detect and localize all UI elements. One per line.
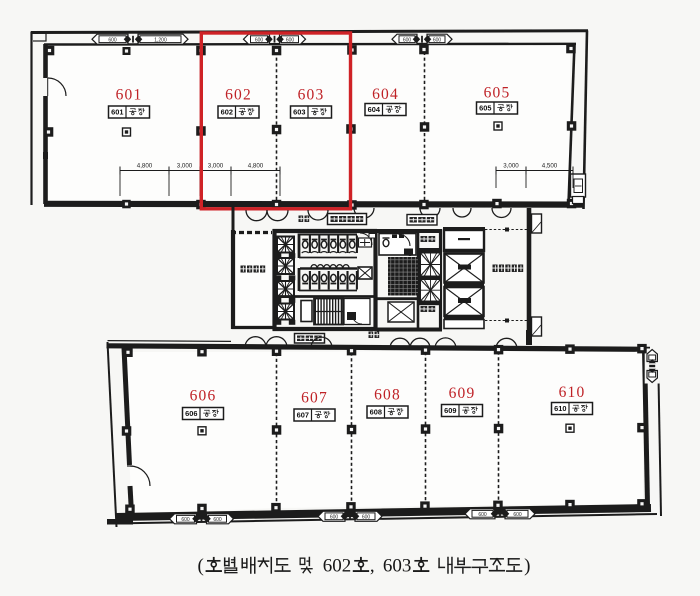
svg-text:608: 608 — [374, 387, 401, 404]
svg-text:3,000: 3,000 — [503, 163, 519, 170]
svg-text:600: 600 — [478, 512, 487, 518]
svg-text:605: 605 — [479, 104, 491, 113]
svg-text:(: ( — [198, 556, 204, 577]
svg-text:603: 603 — [293, 108, 305, 117]
svg-text:602: 602 — [221, 108, 233, 117]
svg-text:3,000: 3,000 — [208, 163, 224, 170]
svg-text:610: 610 — [559, 384, 586, 401]
svg-text:600: 600 — [403, 37, 412, 43]
svg-text:600: 600 — [433, 37, 442, 43]
svg-text:609: 609 — [444, 406, 456, 415]
svg-text:608: 608 — [370, 408, 382, 417]
svg-text:4,800: 4,800 — [137, 163, 153, 170]
svg-text:600: 600 — [362, 514, 371, 520]
svg-text:604: 604 — [372, 86, 399, 103]
svg-text:607: 607 — [297, 411, 309, 420]
svg-text:600: 600 — [330, 514, 339, 520]
svg-text:606: 606 — [185, 409, 197, 418]
svg-text:600: 600 — [108, 37, 117, 43]
svg-text:): ) — [524, 556, 530, 577]
svg-text:600: 600 — [255, 37, 264, 43]
svg-text:3,000: 3,000 — [177, 163, 193, 170]
svg-text:601: 601 — [111, 108, 123, 117]
svg-text:600: 600 — [286, 37, 295, 43]
svg-text:4,800: 4,800 — [248, 163, 264, 170]
svg-text:603: 603 — [298, 87, 325, 104]
svg-text:1,200: 1,200 — [154, 37, 167, 43]
svg-text:600: 600 — [513, 512, 522, 518]
svg-text:607: 607 — [301, 390, 328, 407]
svg-text:4,500: 4,500 — [542, 163, 558, 170]
svg-text:,: , — [370, 556, 375, 577]
svg-text:609: 609 — [449, 385, 476, 402]
svg-text:600: 600 — [181, 517, 190, 523]
svg-text:610: 610 — [554, 404, 566, 413]
svg-text:606: 606 — [190, 388, 217, 405]
svg-text:600: 600 — [213, 517, 222, 523]
svg-text:602: 602 — [323, 556, 352, 577]
svg-text:603: 603 — [383, 556, 412, 577]
svg-text:605: 605 — [484, 85, 511, 102]
svg-text:604: 604 — [368, 105, 381, 114]
svg-text:602: 602 — [225, 87, 252, 104]
svg-text:601: 601 — [116, 87, 143, 104]
